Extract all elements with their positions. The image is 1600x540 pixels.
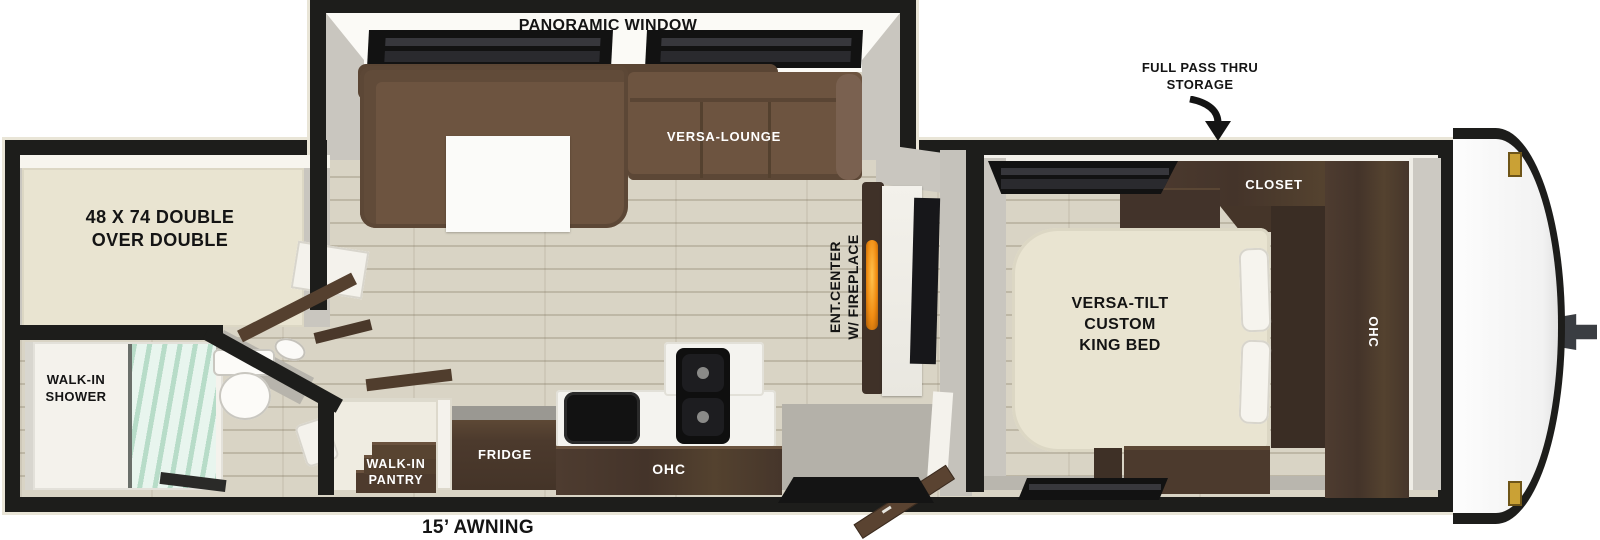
bunk-bed-label-line2: OVER DOUBLE — [92, 229, 228, 252]
sink-drain — [697, 411, 709, 423]
walk-in-shower-label: WALK-IN SHOWER — [28, 372, 124, 406]
closet-label: CLOSET — [1218, 177, 1330, 194]
bath-right-wall — [318, 395, 334, 495]
sink-basin — [682, 398, 724, 436]
panoramic-window-label: PANORAMIC WINDOW — [458, 16, 758, 37]
bed-pillow — [1239, 340, 1272, 425]
bunk-bed-label: 48 X 74 DOUBLE OVER DOUBLE — [40, 206, 280, 253]
pass-thru-storage-label: FULL PASS THRU STORAGE — [1110, 60, 1290, 94]
ent-center-label: ENT.CENTER W/ FIREPLACE — [824, 207, 864, 367]
living-bedroom-divider-wall — [966, 140, 984, 492]
window-slat — [385, 38, 600, 46]
ent-center-label-line1: ENT.CENTER — [826, 241, 844, 333]
versa-lounge-label: VERSA-LOUNGE — [644, 129, 804, 146]
bath-top-wall — [5, 325, 223, 340]
walk-in-pantry-label: WALK-IN PANTRY — [346, 456, 446, 489]
pantry-label-line1: WALK-IN — [366, 456, 425, 472]
sink-basin — [682, 354, 724, 392]
cap-marker-light — [1508, 152, 1522, 177]
bedroom-window-bottom — [1018, 478, 1168, 500]
lounge-table — [446, 136, 570, 232]
bunk-right-wall — [310, 140, 327, 310]
pass-thru-storage-line2: STORAGE — [1167, 77, 1234, 94]
cap-marker-light — [1508, 481, 1522, 506]
front-cap-inner-wall — [1409, 158, 1441, 490]
bunk-bed-label-line1: 48 X 74 DOUBLE — [86, 206, 235, 229]
king-bed-label: VERSA-TILT CUSTOM KING BED — [1020, 294, 1220, 356]
window-slat — [1001, 179, 1168, 189]
bed-headboard — [1271, 206, 1325, 448]
fireplace-flame — [866, 240, 878, 330]
tv-panel — [910, 198, 940, 365]
shower-label-line2: SHOWER — [46, 389, 107, 406]
bedroom-left-wall — [984, 158, 1006, 490]
pantry-label-line2: PANTRY — [369, 472, 424, 488]
awning-label: 15’ AWNING — [368, 516, 588, 540]
lounge-armrest — [836, 74, 862, 180]
shower-glass-door — [128, 344, 216, 488]
king-bed-label-line1: VERSA-TILT — [1071, 294, 1168, 315]
entry-step — [778, 477, 934, 503]
toilet-bowl — [219, 372, 271, 420]
stove-cooktop — [564, 392, 640, 444]
lounge-sofa-right — [628, 72, 862, 180]
window-slat — [660, 51, 851, 62]
window-slat — [1001, 168, 1168, 175]
lounge-back-seam — [630, 98, 860, 102]
pass-thru-storage-line1: FULL PASS THRU — [1142, 60, 1258, 77]
bunk-room-highlight — [20, 155, 330, 168]
sink-drain — [697, 367, 709, 379]
window-slat — [1029, 484, 1161, 490]
kitchen-ohc-label: OHC — [556, 460, 782, 478]
bedroom-window-top — [988, 161, 1178, 194]
door-handle — [882, 506, 892, 514]
kitchen-sink — [676, 348, 730, 444]
window-slat — [384, 51, 599, 62]
king-bed-label-line2: CUSTOM — [1084, 315, 1155, 336]
king-bed-label-line3: KING BED — [1079, 336, 1160, 357]
shower-label-line1: WALK-IN — [47, 372, 105, 389]
bed-pillow — [1239, 248, 1272, 333]
floorplan-canvas: PANORAMIC WINDOW VERSA-LOUNGE FULL PASS … — [0, 0, 1600, 540]
bedroom-ohc-label: OHC — [1353, 292, 1381, 372]
fridge-label: FRIDGE — [452, 447, 558, 464]
storage-arrow-icon — [1186, 96, 1234, 142]
window-slat — [661, 38, 852, 46]
ent-center-label-line2: W/ FIREPLACE — [844, 234, 862, 339]
